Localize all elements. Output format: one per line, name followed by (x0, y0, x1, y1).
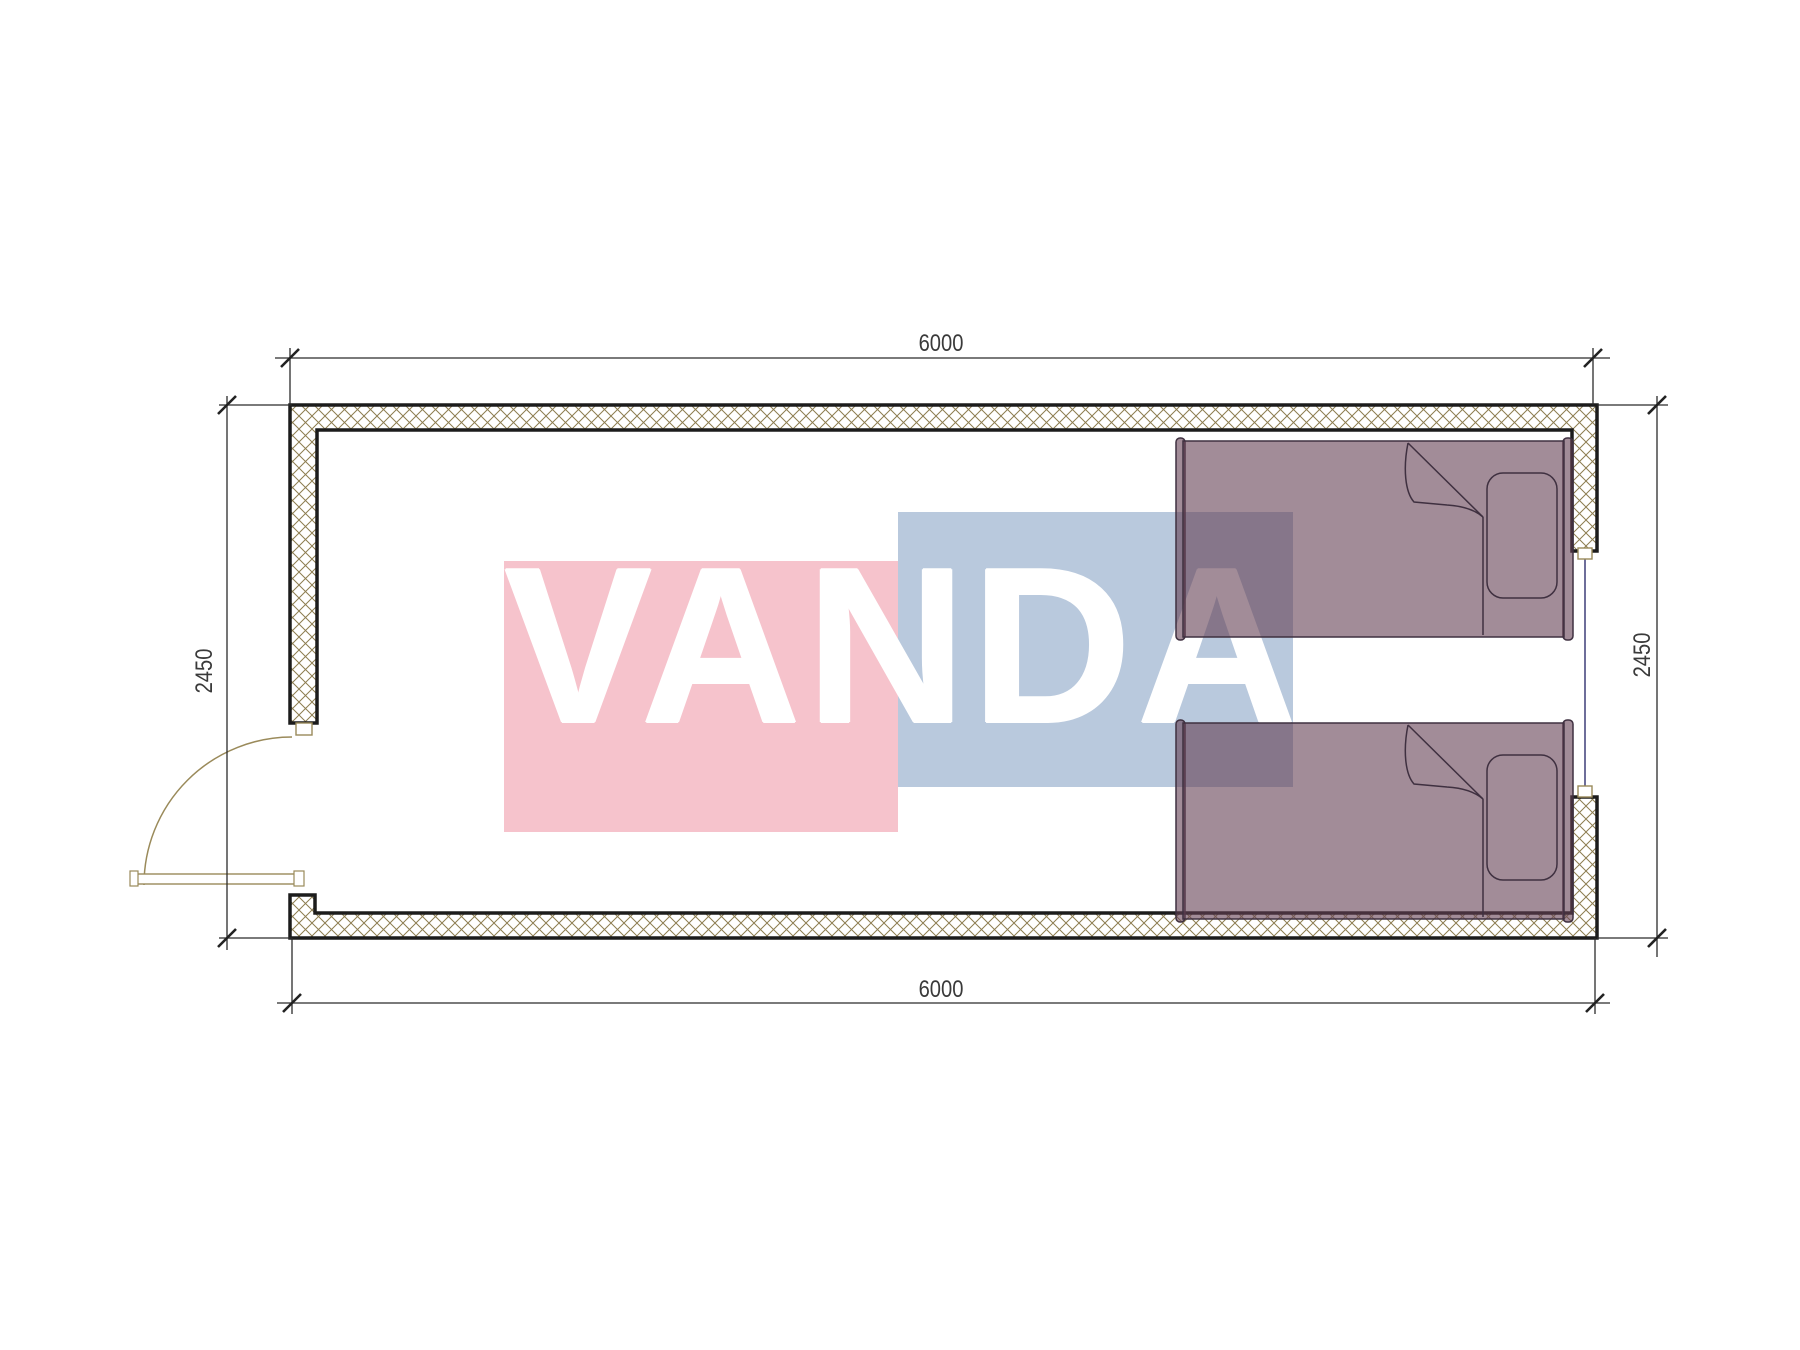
floor-plan-canvas: VANDA 6000 6 (0, 0, 1800, 1350)
bed-mattress (1183, 723, 1564, 919)
furniture-drawing (0, 0, 1800, 1350)
dimension-label-right: 2450 (1630, 617, 1656, 693)
bed-top (1176, 438, 1573, 640)
bed-mattress (1183, 441, 1564, 637)
bed-bottom (1176, 720, 1573, 922)
dimension-label-bottom: 6000 (903, 977, 979, 1003)
dimension-label-top: 6000 (903, 331, 979, 357)
dimension-label-left: 2450 (192, 633, 218, 709)
